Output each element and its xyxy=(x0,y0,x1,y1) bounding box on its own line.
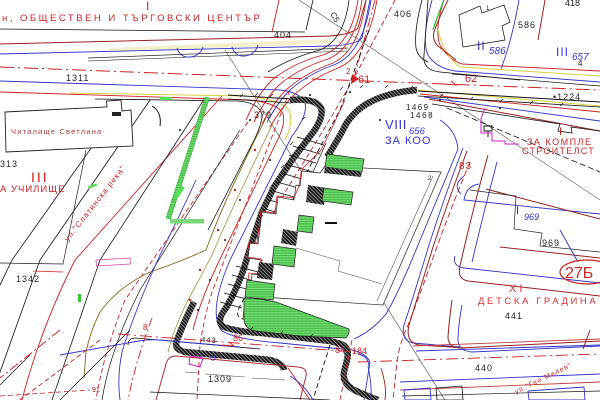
svg-text:•1224: •1224 xyxy=(553,92,581,102)
svg-text:586: 586 xyxy=(518,20,536,30)
svg-text:III: III xyxy=(31,169,49,185)
svg-text:XI: XI xyxy=(509,283,525,295)
svg-text:586: 586 xyxy=(489,46,506,57)
svg-text:А УЧИЛИЩЕ: А УЧИЛИЩЕ xyxy=(0,184,65,195)
svg-text:91: 91 xyxy=(92,387,100,394)
svg-text:1342: 1342 xyxy=(16,274,40,284)
svg-text:Читалище Светлина: Читалище Светлина xyxy=(11,127,102,136)
svg-text:I: I xyxy=(516,205,519,217)
svg-text:СТРОИТЕЛСТ: СТРОИТЕЛСТ xyxy=(522,146,595,156)
svg-text:1468: 1468 xyxy=(410,111,434,120)
svg-text:184: 184 xyxy=(352,346,367,356)
svg-text:1311: 1311 xyxy=(66,73,89,83)
svg-text:н, ОБЩЕСТВЕН И ТЪРГОВСКИ ЦЕНТЪ: н, ОБЩЕСТВЕН И ТЪРГОВСКИ ЦЕНТЪР xyxy=(2,13,262,24)
svg-text:VIII: VIII xyxy=(385,117,407,132)
svg-text:1309: 1309 xyxy=(208,374,232,384)
svg-text:443: 443 xyxy=(201,335,217,345)
svg-text:II: II xyxy=(477,39,486,53)
svg-text:404: 404 xyxy=(274,30,292,40)
svg-text:969: 969 xyxy=(524,212,539,222)
svg-text:61: 61 xyxy=(358,74,370,86)
svg-text:379: 379 xyxy=(254,110,272,120)
svg-text:III: III xyxy=(556,45,569,59)
svg-text:I: I xyxy=(146,0,149,13)
svg-text:313: 313 xyxy=(0,159,18,169)
svg-text:969: 969 xyxy=(542,238,560,248)
svg-text:83: 83 xyxy=(459,161,472,172)
svg-text:27Б: 27Б xyxy=(565,265,593,282)
svg-text:406: 406 xyxy=(394,9,412,19)
svg-text:86: 86 xyxy=(233,333,243,343)
svg-text:441: 441 xyxy=(505,311,523,321)
svg-text:418: 418 xyxy=(565,0,580,8)
svg-text:84: 84 xyxy=(335,345,345,355)
svg-text:4: 4 xyxy=(578,59,583,68)
svg-text:ДЕТСКА ГРАДИНА: ДЕТСКА ГРАДИНА xyxy=(478,296,598,307)
svg-text:2: 2 xyxy=(346,67,351,76)
svg-text:ЗА КОО: ЗА КОО xyxy=(385,135,431,147)
svg-text:440: 440 xyxy=(475,363,493,373)
